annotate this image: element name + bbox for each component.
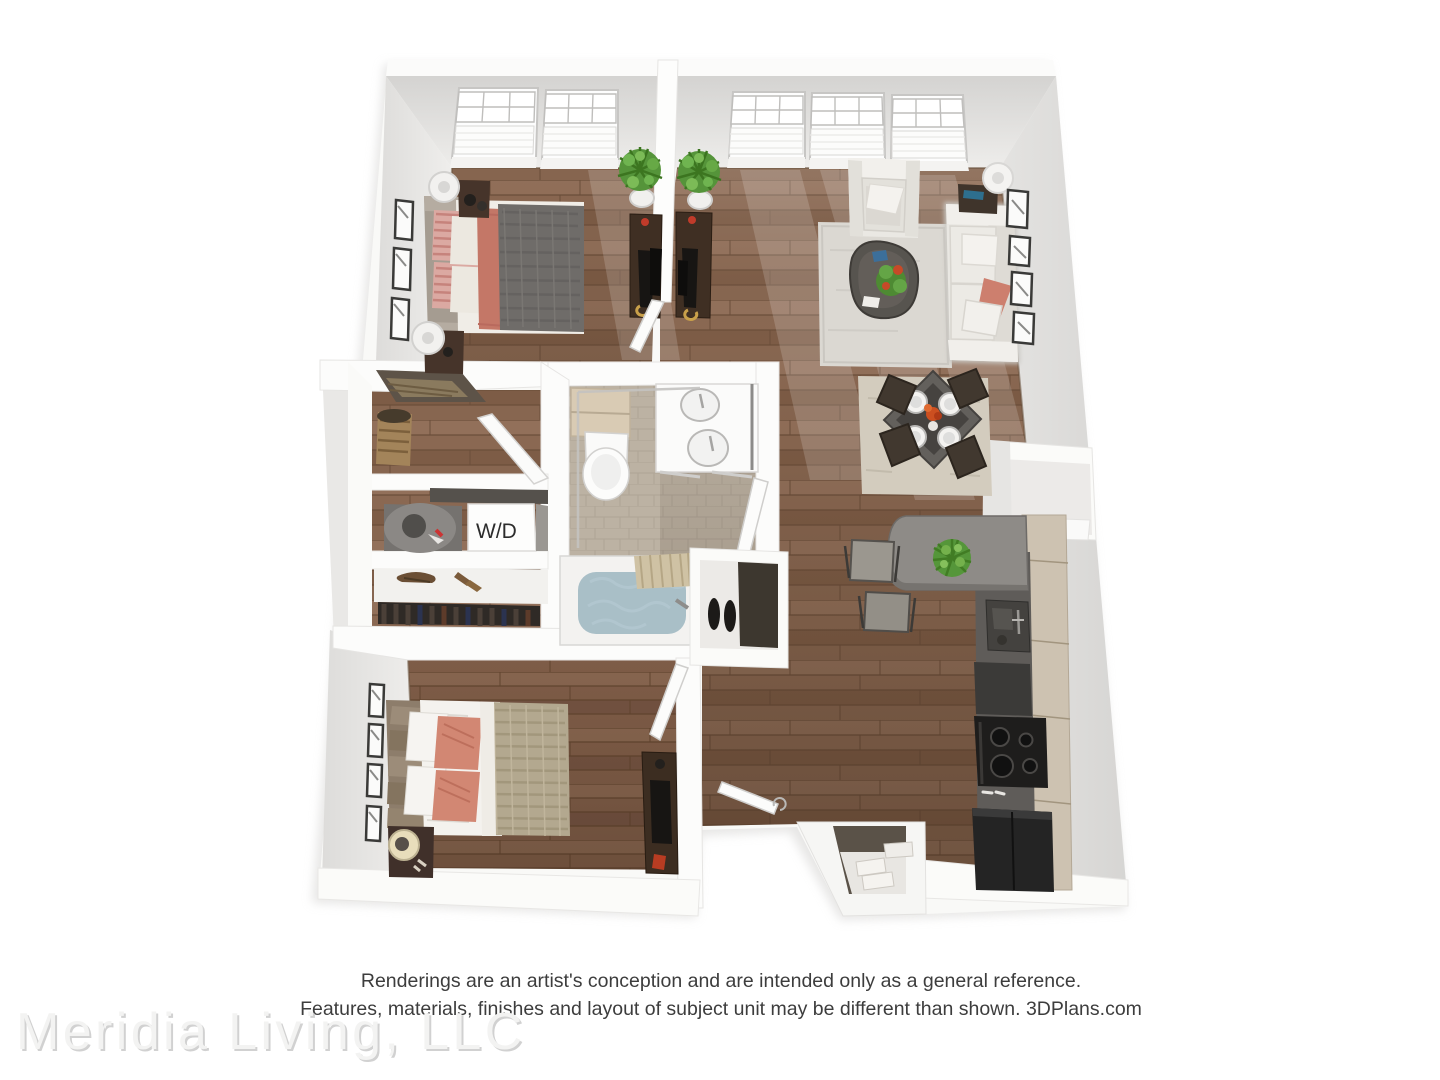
svg-text:Meridia Living, LLC: Meridia Living, LLC xyxy=(16,1003,526,1061)
svg-text:Renderings are an artist's con: Renderings are an artist's conception an… xyxy=(361,970,1081,992)
svg-text:W/D: W/D xyxy=(476,520,517,543)
